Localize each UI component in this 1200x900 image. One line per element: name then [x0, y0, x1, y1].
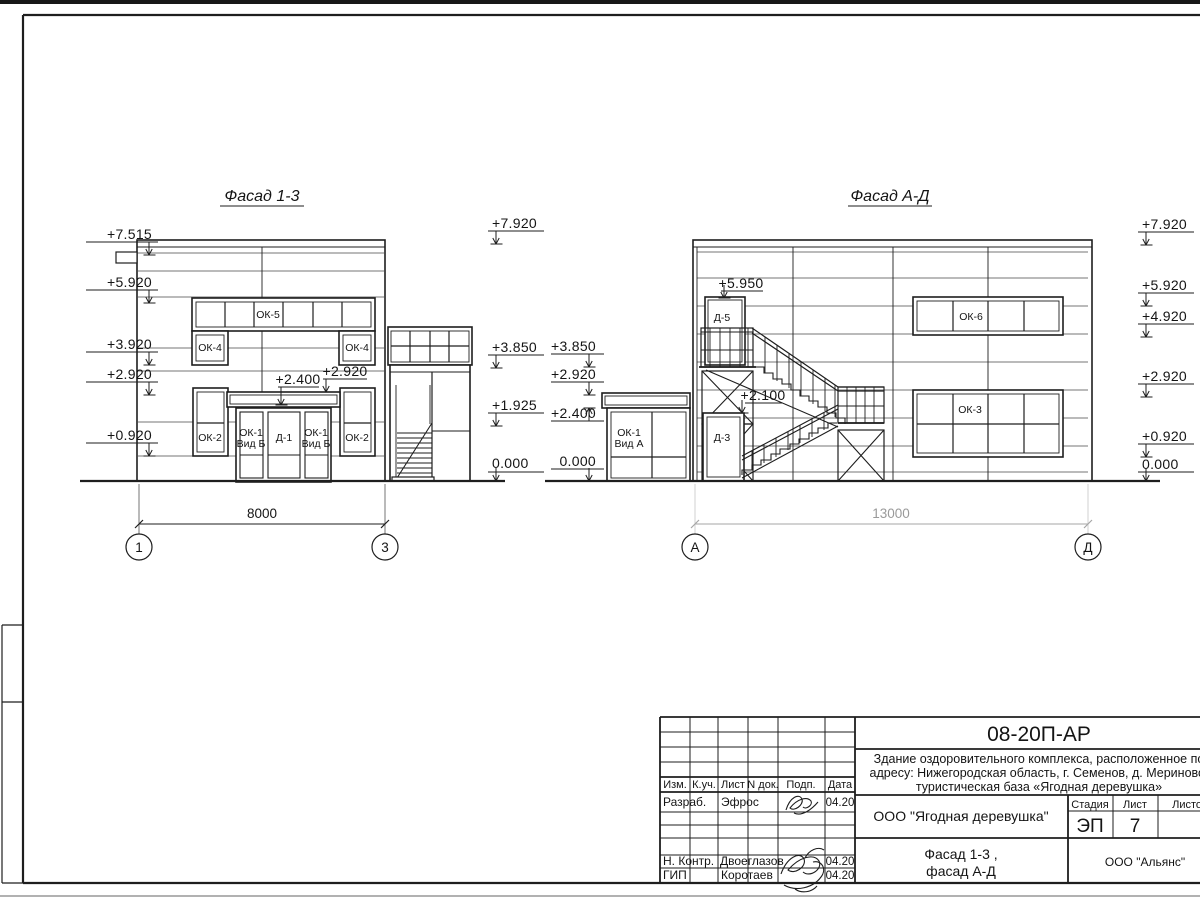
svg-text:+2.920: +2.920	[322, 363, 367, 379]
svg-text:+5.950: +5.950	[718, 275, 763, 291]
label-ok1-right-2: Вид Б	[302, 438, 331, 450]
contractor-name: ООО "Альянс"	[1105, 855, 1185, 869]
stage-label: Стадия	[1071, 799, 1109, 811]
svg-text:0.000: 0.000	[492, 455, 529, 471]
th-ndok: N док.	[747, 779, 778, 791]
row-nkontr-role: Н. Контр.	[663, 854, 714, 868]
stage-value: ЭП	[1076, 816, 1103, 837]
drawing-sheet: Фасад 1-3 ОК-5 ОК-4 ОК-4	[0, 0, 1200, 900]
th-list: Лист	[721, 779, 745, 791]
label-ok1a-2: Вид А	[615, 438, 644, 450]
row-gip-role: ГИП	[663, 868, 687, 882]
doc-code: 08-20П-АР	[987, 723, 1091, 746]
axis-label-3: 3	[381, 540, 389, 555]
row-nkontr-date: 04.20	[826, 856, 855, 868]
window-ok2-left	[193, 388, 228, 456]
label-ok5: ОК-5	[256, 309, 280, 321]
svg-text:+2.920: +2.920	[1142, 368, 1187, 384]
svg-text:+3.850: +3.850	[551, 338, 596, 354]
svg-text:0.000: 0.000	[1142, 456, 1179, 472]
description-line-1: Здание оздоровительного комплекса, распо…	[874, 752, 1200, 766]
dimension-value: 13000	[872, 506, 910, 521]
row-razrab-name: Эфрос	[721, 795, 759, 809]
row-razrab-date: 04.20	[826, 797, 855, 809]
door-d5	[705, 297, 745, 365]
window-ok2-right	[340, 388, 375, 456]
sheet-label: Лист	[1123, 799, 1147, 811]
svg-text:+2.920: +2.920	[107, 366, 152, 382]
axis-label-1: 1	[135, 540, 143, 555]
subject-line-1: Фасад 1-3 ,	[924, 846, 997, 862]
chimney	[116, 252, 137, 263]
window-ok6: ОК-6	[913, 297, 1063, 335]
label-d3: Д-3	[714, 432, 731, 444]
description-line-3: туристическая база «Ягодная деревушка»	[916, 780, 1162, 794]
svg-text:+3.850: +3.850	[492, 339, 537, 355]
svg-text:+7.920: +7.920	[1142, 216, 1187, 232]
subject-line-2: фасад А-Д	[926, 863, 996, 879]
svg-text:+5.920: +5.920	[1142, 277, 1187, 293]
svg-text:+1.925: +1.925	[492, 397, 537, 413]
row-razrab-role: Разраб.	[663, 795, 706, 809]
row-gip-name: Коротаев	[721, 868, 773, 882]
row-gip-date: 04.20	[826, 870, 855, 882]
door-d3	[703, 413, 744, 481]
facade-a-d-title: Фасад А-Д	[850, 188, 929, 205]
th-podp: Подп.	[786, 779, 815, 791]
stair-annex	[388, 327, 472, 481]
svg-text:+7.515: +7.515	[107, 226, 152, 242]
svg-text:+2.920: +2.920	[551, 366, 596, 382]
window-ok3: ОК-3	[913, 390, 1063, 457]
svg-text:+3.920: +3.920	[107, 336, 152, 352]
label-ok2-left: ОК-2	[198, 432, 222, 444]
svg-text:+2.100: +2.100	[740, 387, 785, 403]
label-ok6: ОК-6	[959, 311, 983, 323]
sheet-value: 7	[1130, 816, 1141, 837]
axis-label-a: А	[690, 540, 699, 555]
label-ok4-left: ОК-4	[198, 342, 222, 354]
sheets-total-label: Листов	[1172, 799, 1200, 811]
svg-text:+2.400: +2.400	[275, 371, 320, 387]
th-kuch: К.уч.	[692, 779, 716, 791]
svg-text:+7.920: +7.920	[492, 215, 537, 231]
sheet-top-edge	[0, 0, 1200, 4]
description-line-2: адресу: Нижегородская область, г. Семено…	[870, 766, 1200, 780]
company-name: ООО "Ягодная деревушка"	[873, 808, 1048, 824]
label-ok1-left-2: Вид Б	[237, 438, 266, 450]
label-d1: Д-1	[276, 432, 293, 444]
label-ok3: ОК-3	[958, 404, 982, 416]
dimension-value: 8000	[247, 506, 277, 521]
label-ok2-right: ОК-2	[345, 432, 369, 444]
svg-text:+4.920: +4.920	[1142, 308, 1187, 324]
label-ok4-right: ОК-4	[345, 342, 369, 354]
axis-label-d: Д	[1083, 540, 1092, 555]
label-d5: Д-5	[714, 312, 731, 324]
svg-text:+5.920: +5.920	[107, 274, 152, 290]
svg-text:+0.920: +0.920	[107, 427, 152, 443]
facade-1-3-title: Фасад 1-3	[225, 188, 300, 205]
porch: ОК-1 Вид А	[602, 393, 690, 481]
porch-canopy	[602, 393, 690, 408]
th-data: Дата	[828, 779, 853, 791]
row-nkontr-name: Двоеглазов	[720, 854, 784, 868]
svg-text:0.000: 0.000	[559, 453, 596, 469]
svg-text:+0.920: +0.920	[1142, 428, 1187, 444]
th-izm: Изм.	[663, 779, 687, 791]
